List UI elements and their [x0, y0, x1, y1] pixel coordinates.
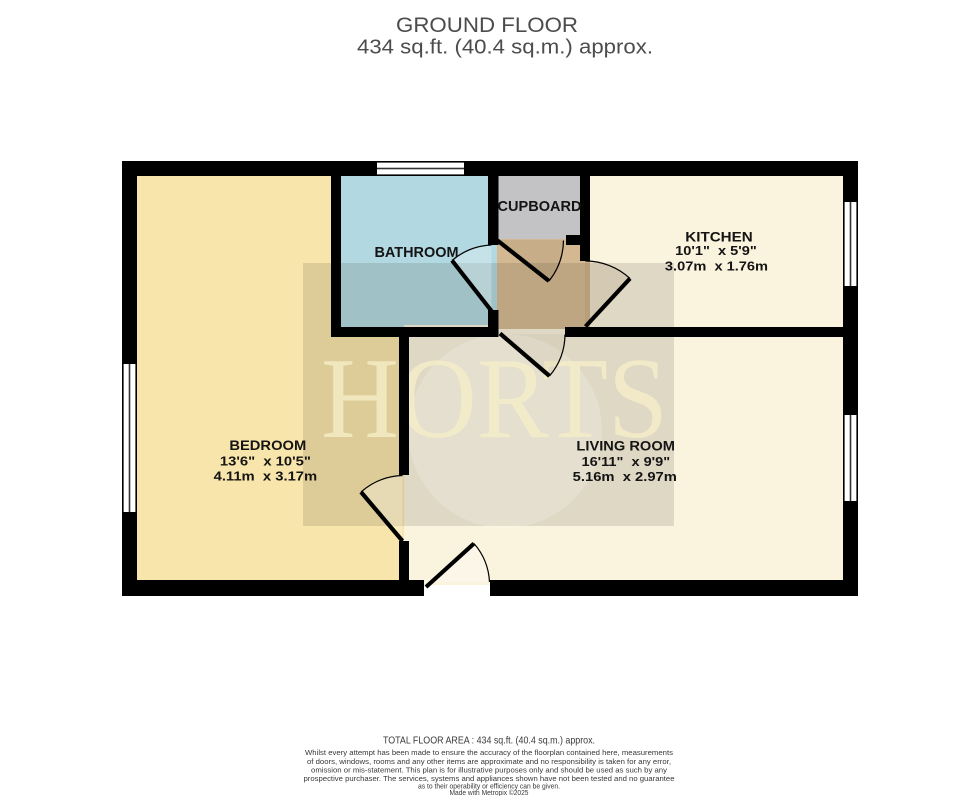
svg-text:5.16m x 2.97m: 5.16m x 2.97m: [573, 469, 677, 484]
svg-text:BEDROOM: BEDROOM: [229, 438, 306, 453]
svg-text:KITCHEN: KITCHEN: [685, 229, 752, 244]
svg-text:3.07m x 1.76m: 3.07m x 1.76m: [665, 258, 768, 273]
svg-text:BATHROOM: BATHROOM: [375, 244, 459, 261]
svg-text:GROUND FLOOR: GROUND FLOOR: [396, 14, 578, 37]
svg-text:16'11" x 9'9": 16'11" x 9'9": [582, 454, 671, 469]
svg-text:CUPBOARD: CUPBOARD: [498, 198, 582, 215]
svg-text:10'1" x 5'9": 10'1" x 5'9": [675, 243, 757, 258]
svg-text:Made with Metropix ©2025: Made with Metropix ©2025: [450, 788, 529, 796]
svg-text:13'6" x 10'5": 13'6" x 10'5": [220, 453, 311, 468]
svg-text:434 sq.ft. (40.4 sq.m.) approx: 434 sq.ft. (40.4 sq.m.) approx.: [357, 36, 653, 59]
svg-text:TOTAL FLOOR AREA : 434 sq.ft.: TOTAL FLOOR AREA : 434 sq.ft. (40.4 sq.m…: [383, 734, 595, 746]
svg-text:LIVING ROOM: LIVING ROOM: [576, 438, 675, 453]
svg-text:4.11m x 3.17m: 4.11m x 3.17m: [214, 468, 318, 483]
